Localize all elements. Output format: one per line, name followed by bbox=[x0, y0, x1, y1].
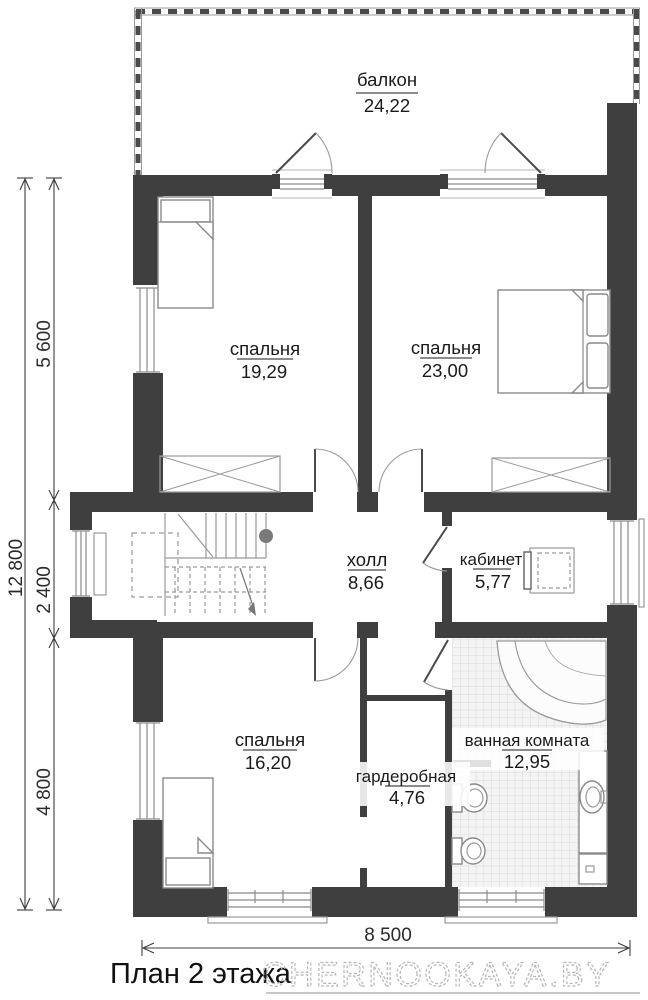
pillow bbox=[166, 858, 210, 885]
dim-width: 8 500 bbox=[364, 925, 412, 946]
window-bottom-right bbox=[445, 889, 557, 923]
door-post bbox=[440, 174, 448, 189]
wall-mid-right bbox=[424, 492, 637, 512]
wall-cabinet-pier bbox=[442, 512, 452, 526]
wall-left-3 bbox=[133, 638, 163, 722]
door-bedroom-19 bbox=[315, 449, 358, 492]
wall-right-2 bbox=[607, 605, 637, 917]
room-name: ванная комната bbox=[465, 731, 590, 750]
monitor bbox=[524, 552, 531, 589]
room-name: гардеробная bbox=[356, 767, 456, 786]
door-post bbox=[324, 174, 332, 189]
window-left-upper bbox=[136, 288, 160, 372]
stair-opening-outline bbox=[132, 533, 178, 597]
wall-top-left bbox=[133, 175, 272, 196]
staircase bbox=[132, 513, 273, 616]
wall-top-right bbox=[545, 175, 637, 196]
wall-bottom-left bbox=[133, 887, 227, 917]
door-bedroom-16 bbox=[315, 638, 358, 681]
room-area: 16,20 bbox=[245, 752, 291, 773]
room-area: 5,77 bbox=[475, 571, 511, 592]
balcony-railing bbox=[134, 8, 640, 175]
room-area: 8,66 bbox=[348, 572, 384, 593]
room-name: спальня bbox=[230, 338, 300, 359]
window-right-cabinet bbox=[610, 519, 644, 607]
bidet bbox=[452, 838, 485, 864]
wall-hallbottom-pier bbox=[357, 622, 378, 638]
room-area: 12,95 bbox=[504, 751, 550, 772]
room-name: холл bbox=[347, 549, 388, 570]
wardrobe-box-upper-right bbox=[492, 458, 610, 492]
floor-plan-canvas: балкон 24,22 спальня 19,29 спальня 23,00… bbox=[0, 0, 648, 1000]
balcony-door-right bbox=[485, 133, 541, 173]
bed-double bbox=[498, 290, 610, 393]
room-area: 23,00 bbox=[422, 360, 468, 381]
bed-single-lower bbox=[163, 778, 213, 888]
door-bedroom-23 bbox=[379, 449, 422, 492]
room-area: 24,22 bbox=[364, 95, 410, 116]
window-sill bbox=[445, 917, 557, 923]
pillow bbox=[587, 343, 608, 388]
window-left-lower bbox=[136, 723, 160, 819]
desk bbox=[524, 548, 574, 593]
pillow bbox=[587, 294, 608, 336]
wall-top-center-pier bbox=[332, 175, 440, 196]
wall-bay-bottom bbox=[70, 620, 157, 638]
door-post bbox=[272, 174, 280, 189]
label-hall: холл 8,66 bbox=[347, 549, 388, 593]
room-area: 19,29 bbox=[241, 361, 287, 382]
watermark-text: CHERNOOKAYA.BY bbox=[262, 956, 611, 994]
wall-left-2 bbox=[133, 373, 163, 492]
dim-middle: 2 400 bbox=[34, 566, 55, 614]
stair-newel-post bbox=[259, 529, 273, 543]
label-cabinet: кабинет 5,77 bbox=[460, 550, 523, 592]
room-name: балкон bbox=[357, 69, 417, 90]
door-post bbox=[537, 174, 545, 189]
wall-bottom-right bbox=[545, 887, 637, 917]
balcony-door-left bbox=[276, 133, 332, 173]
door-bathroom bbox=[424, 640, 448, 690]
wall-bottom-center bbox=[312, 887, 458, 917]
window-sill bbox=[208, 917, 327, 923]
room-name: спальня bbox=[411, 337, 481, 358]
door-cabinet bbox=[423, 527, 447, 571]
wall-cabinet-left bbox=[442, 568, 452, 622]
room-name: кабинет bbox=[460, 550, 523, 569]
window-bay bbox=[72, 531, 106, 596]
dim-total-height: 12 800 bbox=[6, 539, 27, 597]
label-bedroom-23: спальня 23,00 bbox=[411, 337, 481, 381]
pillow bbox=[161, 200, 210, 222]
room-area: 4,76 bbox=[389, 787, 425, 808]
wall-mid-left bbox=[70, 492, 313, 512]
footer: План 2 этажа CHERNOOKAYA.BY bbox=[110, 956, 640, 994]
wall-balcony-corner bbox=[607, 103, 637, 175]
bed-single-upper bbox=[158, 197, 213, 308]
dim-lower: 4 800 bbox=[34, 768, 55, 816]
wall-mid-pier bbox=[357, 492, 378, 512]
wall-hallbottom-right bbox=[435, 622, 637, 638]
wall-wardrobe-stub bbox=[360, 868, 367, 887]
wall-bedroom-divider bbox=[358, 196, 372, 492]
wall-right-1 bbox=[607, 196, 637, 520]
floor-plan-page: балкон 24,22 спальня 19,29 спальня 23,00… bbox=[0, 0, 648, 1000]
label-balcony: балкон 24,22 bbox=[356, 69, 418, 116]
washing-machine bbox=[579, 854, 607, 884]
label-bedroom-16: спальня 16,20 bbox=[235, 729, 305, 773]
dim-upper: 5 600 bbox=[34, 320, 55, 368]
label-bedroom-19: спальня 19,29 bbox=[230, 338, 300, 382]
wall-hallbottom-left bbox=[157, 622, 313, 638]
wardrobe-box-upper-left bbox=[160, 456, 280, 492]
wall-wardrobe-top bbox=[367, 695, 445, 701]
room-name: спальня bbox=[235, 729, 305, 750]
